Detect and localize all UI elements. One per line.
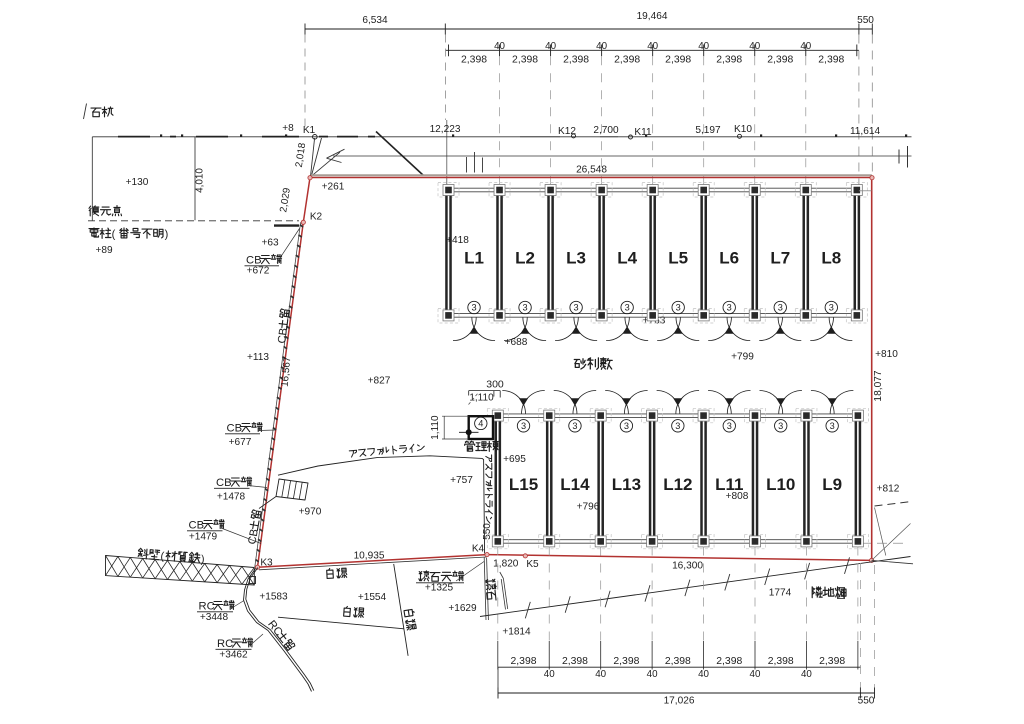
- svg-text:4: 4: [478, 419, 483, 429]
- svg-text:2,398: 2,398: [512, 55, 538, 66]
- svg-text:+1583: +1583: [259, 592, 288, 603]
- svg-text:+3462: +3462: [219, 650, 248, 661]
- svg-text:2,398: 2,398: [665, 55, 691, 66]
- svg-text:RC: RC: [199, 600, 215, 612]
- svg-text:19,464: 19,464: [637, 11, 668, 22]
- svg-text:2,398: 2,398: [716, 55, 742, 66]
- svg-text:3: 3: [676, 303, 681, 313]
- svg-text:L2: L2: [515, 249, 535, 268]
- svg-text:K3: K3: [260, 558, 273, 569]
- svg-text:L12: L12: [663, 475, 692, 494]
- svg-text:2,398: 2,398: [562, 656, 588, 667]
- svg-text:+113: +113: [247, 352, 269, 363]
- svg-text:2,398: 2,398: [461, 55, 487, 66]
- svg-text:+89: +89: [95, 245, 113, 256]
- svg-text:2,398: 2,398: [614, 55, 640, 66]
- svg-text:40: 40: [698, 41, 709, 52]
- svg-text:L9: L9: [822, 475, 842, 494]
- svg-text:+1325: +1325: [425, 583, 454, 594]
- svg-text:K10: K10: [734, 124, 752, 135]
- svg-text:3: 3: [727, 303, 732, 313]
- svg-text:6,534: 6,534: [362, 15, 388, 26]
- svg-text:CB: CB: [216, 477, 232, 489]
- svg-text:26,548: 26,548: [576, 165, 607, 176]
- svg-text:5,197: 5,197: [695, 125, 721, 136]
- svg-text:3: 3: [471, 303, 476, 313]
- svg-text:2,398: 2,398: [665, 656, 691, 667]
- svg-text:L14: L14: [560, 475, 590, 494]
- svg-text:40: 40: [494, 41, 505, 52]
- svg-text:K5: K5: [526, 559, 539, 570]
- svg-text:40: 40: [698, 669, 709, 680]
- svg-text:+672: +672: [247, 266, 270, 277]
- svg-text:1,820: 1,820: [493, 558, 519, 569]
- svg-text:+1478: +1478: [217, 492, 246, 503]
- svg-text:11,614: 11,614: [850, 126, 881, 137]
- svg-text:L11: L11: [715, 475, 743, 494]
- svg-text:L1: L1: [464, 249, 484, 268]
- svg-text:550: 550: [858, 695, 875, 706]
- svg-text:300: 300: [486, 379, 504, 391]
- svg-text:+812: +812: [877, 484, 900, 495]
- svg-text:+1629: +1629: [448, 603, 477, 614]
- svg-text:+757: +757: [450, 475, 473, 486]
- svg-text:CB: CB: [189, 519, 205, 531]
- svg-text:40: 40: [801, 669, 812, 680]
- svg-text:3: 3: [778, 303, 783, 313]
- svg-text:2,700: 2,700: [593, 125, 619, 136]
- svg-text:2,398: 2,398: [818, 55, 844, 66]
- svg-text:1,110: 1,110: [430, 415, 441, 440]
- svg-text:L6: L6: [719, 249, 739, 268]
- svg-text:L13: L13: [612, 475, 641, 494]
- svg-text:2,398: 2,398: [511, 656, 537, 667]
- svg-text:+261: +261: [322, 182, 345, 193]
- svg-text:+827: +827: [368, 376, 391, 387]
- svg-text:2,398: 2,398: [716, 656, 742, 667]
- svg-text:1,110: 1,110: [469, 393, 494, 404]
- svg-text:40: 40: [647, 41, 658, 52]
- svg-text:K11: K11: [634, 127, 652, 138]
- svg-text:+799: +799: [731, 352, 754, 363]
- svg-text:16,300: 16,300: [672, 560, 703, 571]
- svg-text:CB: CB: [227, 422, 243, 434]
- svg-text:40: 40: [800, 41, 811, 52]
- svg-text:2,398: 2,398: [767, 55, 793, 66]
- svg-text:40: 40: [544, 669, 555, 680]
- svg-text:3: 3: [521, 421, 526, 431]
- svg-text:40: 40: [647, 669, 658, 680]
- svg-text:K4: K4: [472, 544, 485, 555]
- svg-text:+1554: +1554: [358, 592, 387, 603]
- svg-text:40: 40: [545, 41, 556, 52]
- svg-text:+130: +130: [126, 177, 149, 188]
- svg-text:3: 3: [624, 421, 629, 431]
- svg-text:K2: K2: [310, 212, 323, 223]
- svg-text:40: 40: [749, 41, 760, 52]
- svg-text:3: 3: [675, 421, 680, 431]
- svg-text:L15: L15: [509, 475, 538, 494]
- svg-text:K1: K1: [303, 125, 316, 136]
- svg-text:+3448: +3448: [200, 612, 229, 623]
- svg-text:10,935: 10,935: [354, 551, 385, 562]
- svg-text:3: 3: [830, 421, 835, 431]
- svg-text:L4: L4: [617, 249, 637, 268]
- svg-text:3: 3: [572, 421, 577, 431]
- svg-text:L10: L10: [766, 475, 795, 494]
- svg-text:40: 40: [596, 41, 607, 52]
- svg-text:3: 3: [727, 421, 732, 431]
- svg-text:+8: +8: [282, 123, 294, 134]
- svg-text:3: 3: [522, 303, 527, 313]
- svg-text:4,010: 4,010: [195, 168, 206, 193]
- svg-text:RC: RC: [217, 638, 233, 650]
- svg-text:L5: L5: [668, 249, 688, 268]
- svg-text:+695: +695: [503, 454, 526, 465]
- svg-text:3: 3: [829, 303, 834, 313]
- svg-text:17,026: 17,026: [664, 695, 695, 706]
- svg-text:2,398: 2,398: [768, 656, 794, 667]
- svg-text:2,398: 2,398: [819, 656, 845, 667]
- svg-text:K12: K12: [558, 126, 576, 137]
- svg-text:+796: +796: [577, 502, 600, 513]
- svg-text:3: 3: [574, 303, 579, 313]
- svg-text:550: 550: [857, 15, 874, 26]
- svg-text:40: 40: [750, 669, 761, 680]
- svg-text:+63: +63: [261, 238, 279, 249]
- svg-text:+1814: +1814: [502, 627, 531, 638]
- svg-text:2,398: 2,398: [563, 55, 589, 66]
- svg-text:1774: 1774: [769, 588, 792, 599]
- svg-text:3: 3: [625, 303, 630, 313]
- svg-text:(: (: [112, 229, 116, 241]
- svg-text:+418: +418: [446, 235, 469, 246]
- svg-text:+688: +688: [505, 337, 528, 348]
- svg-text:3: 3: [778, 421, 783, 431]
- svg-text:2,398: 2,398: [613, 656, 639, 667]
- svg-text:L8: L8: [821, 249, 841, 268]
- svg-text:18,077: 18,077: [873, 370, 884, 401]
- svg-text:+1479: +1479: [189, 532, 218, 543]
- svg-text:L3: L3: [566, 249, 586, 268]
- svg-text:L7: L7: [770, 249, 790, 268]
- svg-text:+810: +810: [875, 349, 898, 360]
- svg-text:12,223: 12,223: [430, 124, 461, 135]
- svg-text:40: 40: [595, 669, 606, 680]
- svg-text:+970: +970: [299, 507, 322, 518]
- svg-text:): ): [165, 229, 169, 241]
- svg-text:+677: +677: [229, 437, 252, 448]
- svg-text:CB: CB: [276, 327, 290, 344]
